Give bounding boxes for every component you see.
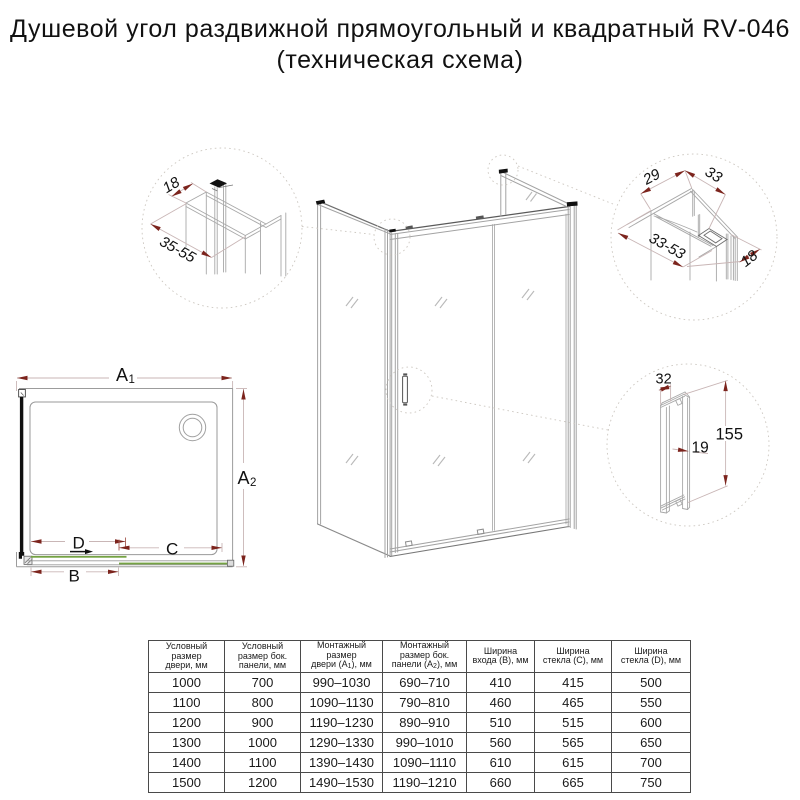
- svg-text:19: 19: [692, 440, 709, 457]
- svg-text:1: 1: [129, 374, 135, 386]
- svg-text:A: A: [116, 365, 128, 385]
- svg-text:2: 2: [250, 477, 256, 489]
- svg-text:155: 155: [716, 426, 744, 444]
- svg-text:B: B: [69, 567, 80, 586]
- svg-text:A: A: [238, 468, 250, 488]
- svg-text:35-55: 35-55: [157, 233, 199, 267]
- svg-text:32: 32: [656, 372, 672, 388]
- svg-text:C: C: [166, 540, 178, 559]
- svg-text:29: 29: [640, 165, 664, 189]
- svg-text:33: 33: [702, 163, 726, 187]
- svg-text:D: D: [73, 534, 85, 553]
